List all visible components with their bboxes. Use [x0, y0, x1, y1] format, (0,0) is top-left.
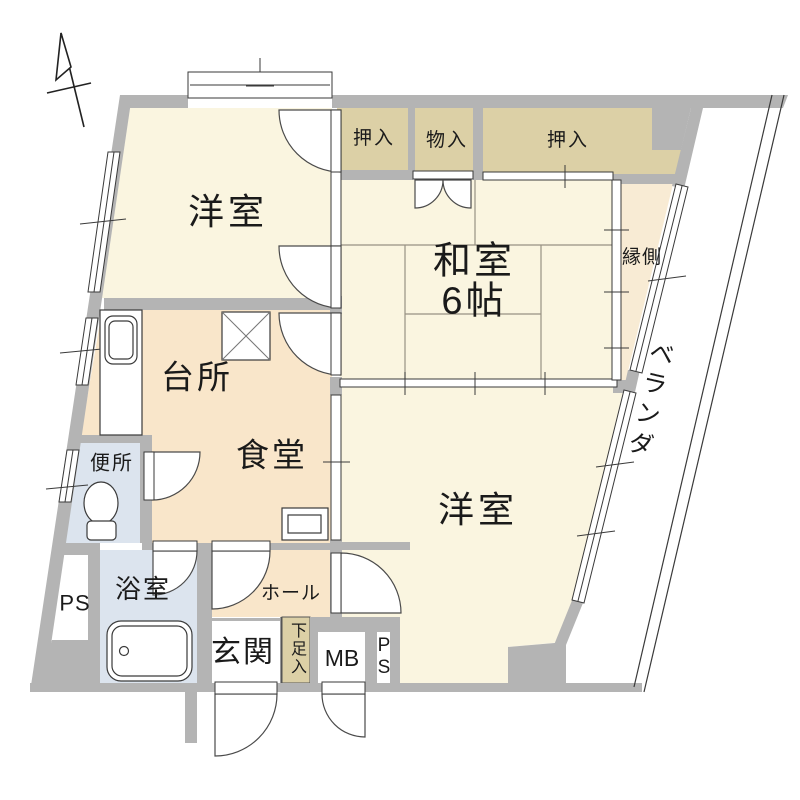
- room-label-kitchen: 台所: [161, 361, 233, 396]
- room-label-closet-2: 押入: [547, 131, 589, 151]
- sliding-door: [483, 172, 613, 180]
- room-label-western-room-2: 洋室: [438, 491, 518, 529]
- room-label-storage: 物入: [426, 131, 468, 151]
- door-leaf: [215, 682, 277, 694]
- door-leaf: [212, 541, 270, 551]
- room-label-dining: 食堂: [236, 439, 308, 474]
- sliding-door: [612, 180, 621, 380]
- room-label-pipe-space-left: PS: [59, 591, 90, 614]
- floor-plan: 洋室 押入 物入 押入 和室 6帖 縁側 ベランダ 台所 食堂 便所 浴室 PS…: [0, 0, 800, 800]
- floor-plan-drawing: [0, 0, 800, 800]
- door-leaf: [331, 110, 341, 172]
- room-label-hall: ホール: [261, 584, 321, 604]
- door-leaf: [322, 682, 365, 694]
- door-leaf: [331, 553, 341, 613]
- room-label-pipe-space-right: P S: [378, 635, 391, 679]
- door-leaf: [144, 452, 154, 500]
- room-label-western-room-1: 洋室: [188, 193, 268, 231]
- toilet-icon: [84, 482, 118, 524]
- room-label-japanese-room: 和室 6帖: [433, 242, 515, 323]
- north-arrow-icon: [47, 33, 91, 127]
- room-label-meter-box: MB: [325, 646, 360, 670]
- door-leaf: [331, 246, 341, 308]
- room-label-bath: 浴室: [115, 576, 171, 604]
- bathtub-drain-icon: [120, 647, 129, 656]
- sliding-door: [331, 172, 341, 246]
- kitchen-sink-icon: [109, 321, 133, 359]
- double-door-opening: [413, 171, 473, 179]
- toilet-icon: [87, 521, 116, 540]
- door-leaf: [331, 313, 341, 375]
- room-label-closet-1: 押入: [353, 129, 395, 149]
- room-label-shoe-cabinet: 下足入: [288, 622, 304, 676]
- sliding-door: [340, 379, 617, 387]
- dining-counter-icon: [288, 515, 321, 533]
- room-label-entrance: 玄関: [211, 637, 275, 669]
- room-label-toilet: 便所: [90, 453, 134, 474]
- door-swing: [215, 694, 277, 756]
- room-label-engawa: 縁側: [622, 248, 662, 268]
- door-swing: [322, 694, 365, 737]
- sliding-door: [331, 395, 341, 540]
- door-leaf: [153, 541, 197, 551]
